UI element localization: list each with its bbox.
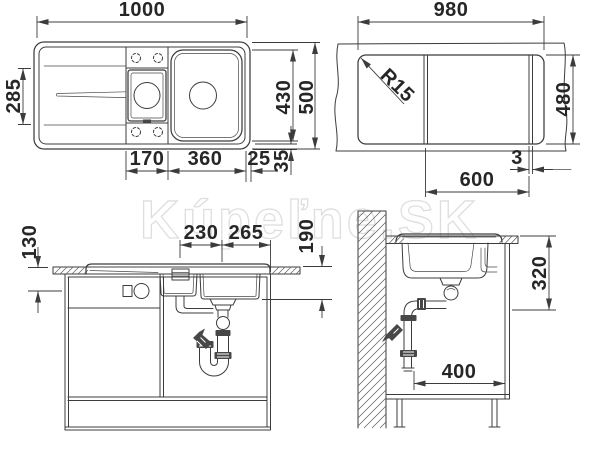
pipe-nut	[401, 315, 417, 321]
dim-rim-right: 25	[247, 148, 270, 170]
dim-half-bowl-drain-offset: 230	[184, 222, 219, 244]
cutout-edge-line	[529, 55, 533, 144]
dim-overall-depth: 500	[296, 80, 318, 115]
appliance-button-square	[123, 286, 132, 297]
ext-lines-3	[529, 146, 533, 174]
dim-main-bowl-width: 360	[188, 148, 223, 170]
section-drain-pipe	[402, 301, 446, 371]
ball-joint	[217, 317, 230, 330]
main-bowl-drain	[190, 82, 217, 109]
pipe-coupling-lower	[400, 350, 417, 357]
dim-corner-radius: R15	[376, 65, 419, 107]
ext-lines-190	[262, 267, 332, 300]
half-bowl-inner	[131, 73, 163, 118]
drainboard-channel	[56, 92, 126, 98]
dim-bowl-depth: 190	[296, 219, 318, 254]
cutout-divider-line	[424, 55, 428, 144]
section-ball-joint	[444, 286, 458, 300]
dim-half-bowl-width: 170	[130, 148, 165, 170]
dim-gap: 3	[511, 147, 523, 169]
main-bowl	[171, 50, 242, 141]
section-drain-basket	[437, 278, 465, 285]
sink-top-view: 1000 285 430 500 170 360 25 35	[3, 0, 320, 182]
ball-joint-shade	[447, 289, 455, 291]
trap-nut	[216, 330, 231, 336]
dim-main-bowl-drain-offset: 265	[229, 222, 264, 244]
sink-back-profile	[481, 248, 497, 272]
dim-rim-bottom: 35	[271, 149, 293, 172]
tap-hole-markings	[132, 54, 163, 137]
sink-outer-rim	[34, 42, 250, 149]
dim-offset: 600	[460, 169, 495, 191]
appliance-knob-circle	[134, 284, 149, 299]
technical-drawing-page: Kúpeľne.SK 1000 285 430	[0, 0, 600, 453]
dim-overall-width: 1000	[119, 0, 166, 21]
dim-cutout-width: 980	[434, 0, 469, 21]
dim-bowl-opening-height: 285	[3, 79, 25, 114]
sink-rim-inner	[90, 267, 264, 273]
drain-tailpipe	[218, 310, 228, 317]
dim-drain-height: 320	[529, 256, 551, 291]
cabinet-front	[65, 274, 271, 430]
side-section-view: 320 400	[358, 211, 556, 428]
pipe-coupling-elbow	[417, 298, 426, 310]
sink-installation-drawing: Kúpeľne.SK 1000 285 430	[0, 0, 600, 453]
half-bowl-drain	[134, 83, 160, 109]
dim-cutout-depth: 480	[553, 82, 575, 117]
cutout-rect	[358, 55, 544, 144]
cabinet-section	[386, 244, 510, 428]
front-installation-view: 130 230 265 190	[19, 219, 332, 430]
overflow-mark	[143, 120, 151, 123]
main-bowl-front	[200, 274, 260, 299]
main-drain-basket	[210, 299, 236, 310]
main-bowl-inner	[175, 54, 239, 138]
ext-lines-980	[358, 16, 544, 50]
worktop-cutout-view: R15 980 480 3 600	[335, 0, 580, 197]
sink-inner-rim	[39, 47, 245, 144]
trap-coupling-right	[215, 352, 232, 359]
dim-bowls-span: 430	[273, 80, 295, 115]
dim-top-clearance: 130	[19, 225, 41, 260]
dim-drain-wall-offset: 400	[442, 361, 477, 383]
